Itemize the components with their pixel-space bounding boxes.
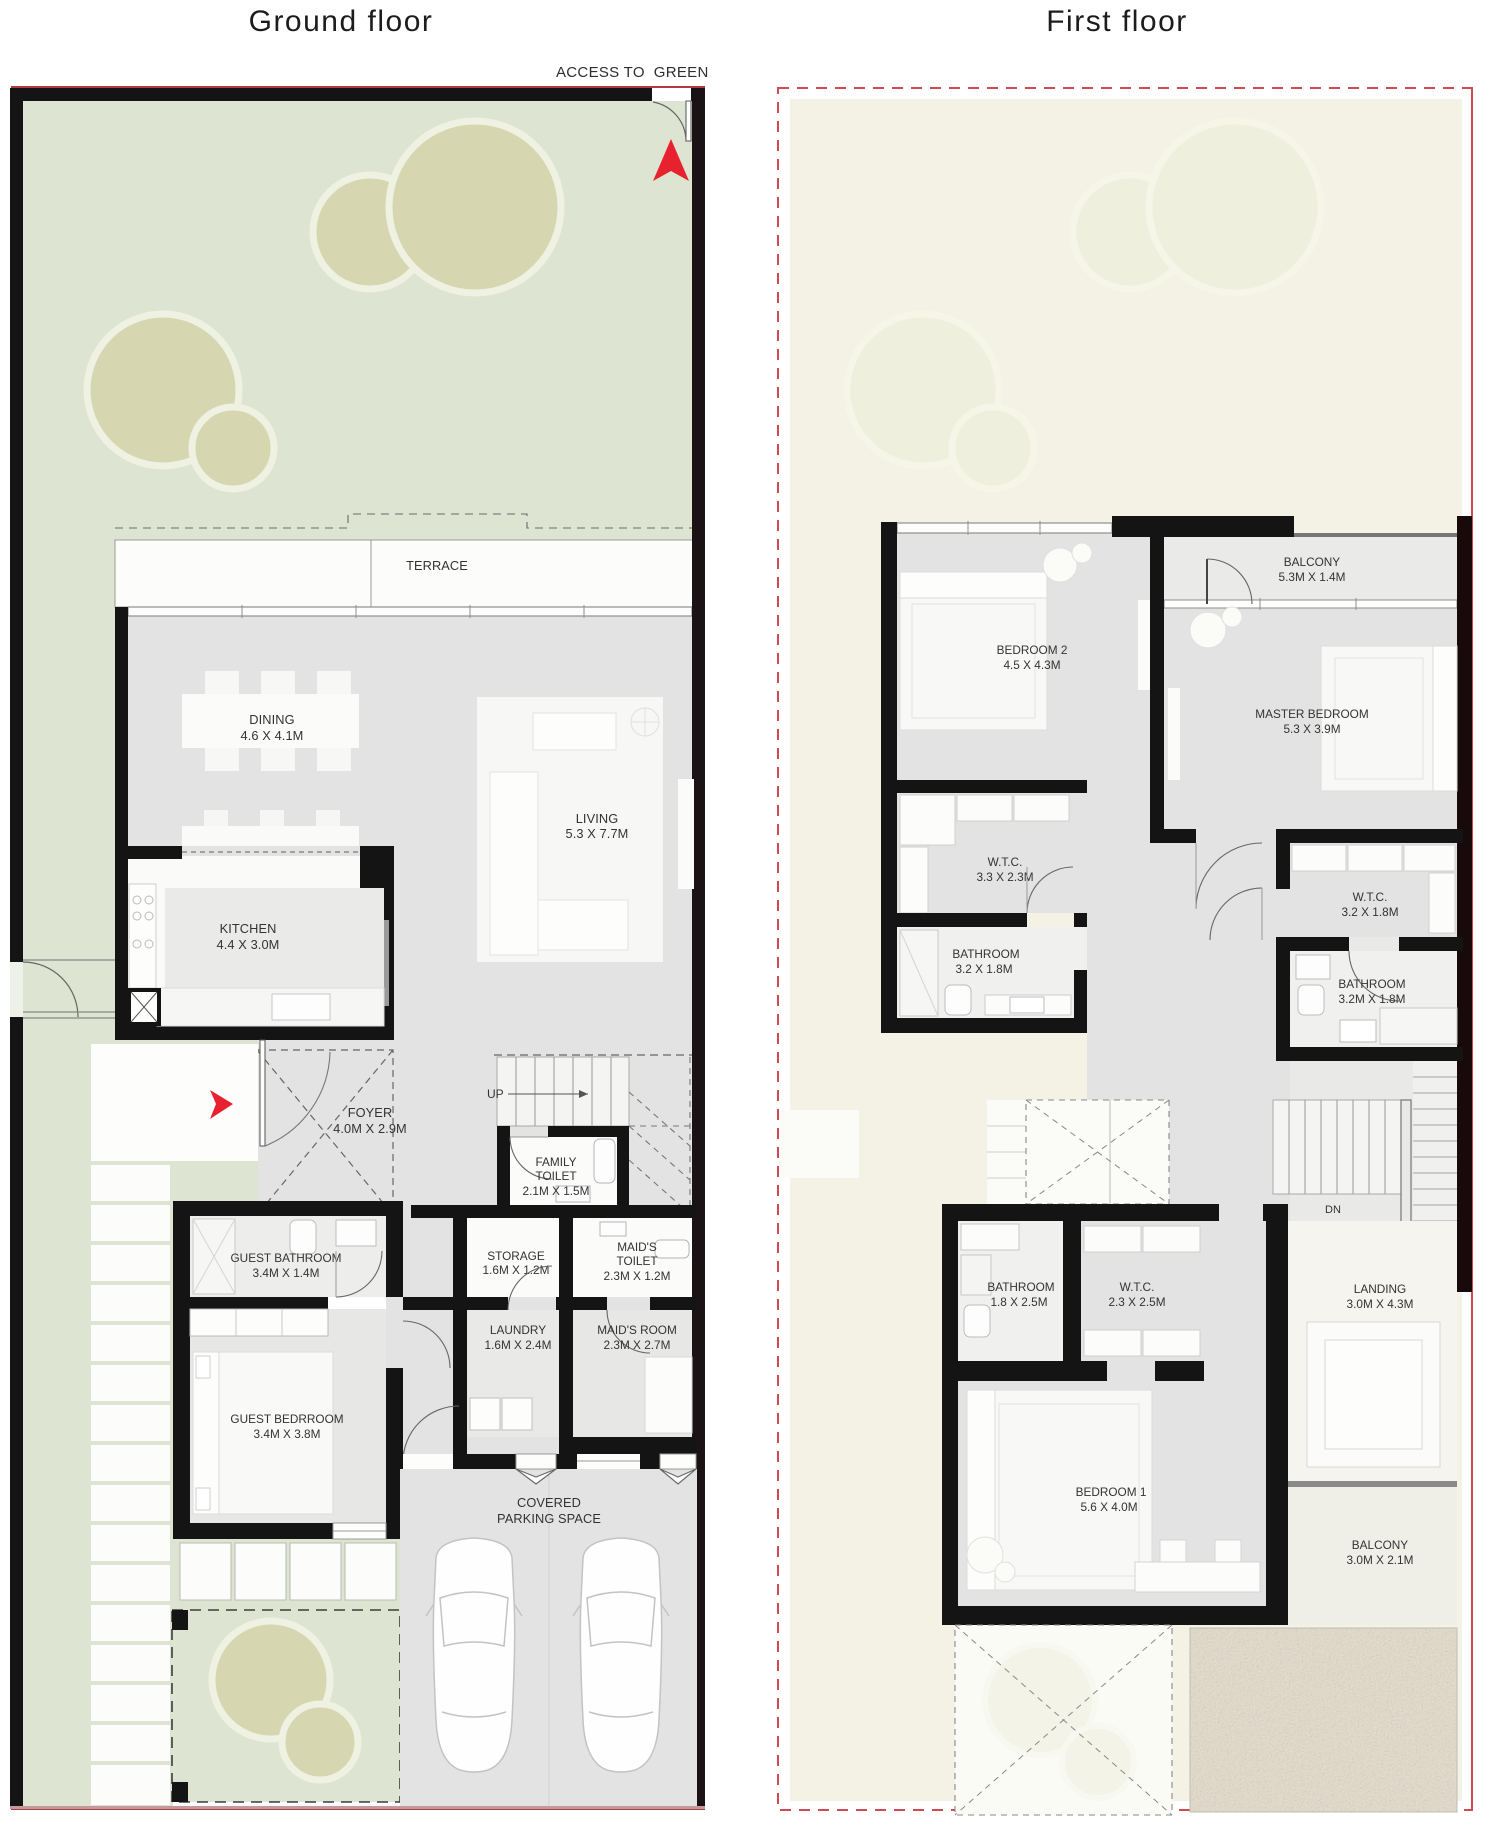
svg-text:MAID'S: MAID'S (617, 1240, 657, 1254)
svg-text:3.2M X 1.8M: 3.2M X 1.8M (1339, 992, 1406, 1006)
svg-text:W.T.C.: W.T.C. (1353, 890, 1388, 904)
svg-text:4.4 X 3.0M: 4.4 X 3.0M (217, 937, 280, 952)
svg-text:UP: UP (487, 1087, 504, 1101)
svg-text:MASTER BEDROOM: MASTER BEDROOM (1255, 707, 1368, 721)
svg-text:PARKING SPACE: PARKING SPACE (497, 1511, 601, 1526)
svg-text:3.2 X 1.8M: 3.2 X 1.8M (955, 962, 1012, 976)
svg-text:GUEST BATHROOM: GUEST BATHROOM (231, 1251, 342, 1265)
svg-text:Ground floor: Ground floor (249, 5, 434, 38)
svg-text:GUEST BEDRROOM: GUEST BEDRROOM (230, 1412, 343, 1426)
svg-text:1.6M X 1.2M: 1.6M X 1.2M (483, 1263, 550, 1277)
svg-text:COVERED: COVERED (517, 1495, 581, 1510)
svg-text:FOYER: FOYER (348, 1105, 393, 1120)
svg-text:1.8 X 2.5M: 1.8 X 2.5M (990, 1295, 1047, 1309)
svg-text:BEDROOM 2: BEDROOM 2 (997, 643, 1068, 657)
svg-text:5.3M X 1.4M: 5.3M X 1.4M (1279, 570, 1346, 584)
svg-text:MAID'S ROOM: MAID'S ROOM (597, 1323, 677, 1337)
svg-text:5.6 X 4.0M: 5.6 X 4.0M (1080, 1500, 1137, 1514)
svg-text:3.0M X 2.1M: 3.0M X 2.1M (1347, 1553, 1414, 1567)
svg-text:BATHROOM: BATHROOM (952, 947, 1019, 961)
svg-text:3.0M X 4.3M: 3.0M X 4.3M (1347, 1297, 1414, 1311)
svg-text:3.4M X 1.4M: 3.4M X 1.4M (253, 1266, 320, 1280)
svg-text:TOILET: TOILET (616, 1254, 657, 1268)
svg-text:2.3 X 2.5M: 2.3 X 2.5M (1108, 1295, 1165, 1309)
svg-text:W.T.C.: W.T.C. (1120, 1280, 1155, 1294)
svg-text:LAUNDRY: LAUNDRY (490, 1323, 546, 1337)
svg-text:2.3M X 2.7M: 2.3M X 2.7M (604, 1338, 671, 1352)
svg-text:BATHROOM: BATHROOM (987, 1280, 1054, 1294)
svg-text:3.4M X 3.8M: 3.4M X 3.8M (254, 1427, 321, 1441)
svg-text:3.3 X 2.3M: 3.3 X 2.3M (976, 870, 1033, 884)
svg-text:5.3 X 7.7M: 5.3 X 7.7M (566, 826, 629, 841)
svg-text:2.1M X 1.5M: 2.1M X 1.5M (523, 1184, 590, 1198)
svg-text:4.6 X 4.1M: 4.6 X 4.1M (241, 728, 304, 743)
svg-text:DN: DN (1325, 1204, 1341, 1216)
svg-text:TOILET: TOILET (535, 1169, 576, 1183)
svg-text:ACCESS TO GREEN: ACCESS TO GREEN (556, 64, 709, 81)
svg-text:BALCONY: BALCONY (1352, 1538, 1409, 1552)
svg-text:First floor: First floor (1046, 5, 1188, 38)
svg-text:5.3 X 3.9M: 5.3 X 3.9M (1283, 722, 1340, 736)
svg-text:BATHROOM: BATHROOM (1338, 977, 1405, 991)
svg-text:1.6M X 2.4M: 1.6M X 2.4M (485, 1338, 552, 1352)
svg-text:FAMILY: FAMILY (535, 1155, 576, 1169)
svg-text:W.T.C.: W.T.C. (988, 855, 1023, 869)
svg-text:4.0M X 2.9M: 4.0M X 2.9M (333, 1121, 407, 1136)
svg-text:4.5 X 4.3M: 4.5 X 4.3M (1003, 658, 1060, 672)
svg-text:DINING: DINING (249, 712, 294, 727)
svg-text:2.3M X 1.2M: 2.3M X 1.2M (604, 1269, 671, 1283)
svg-text:STORAGE: STORAGE (487, 1249, 545, 1263)
svg-text:BALCONY: BALCONY (1284, 555, 1341, 569)
svg-text:BEDROOM 1: BEDROOM 1 (1076, 1485, 1147, 1499)
svg-text:LIVING: LIVING (576, 811, 619, 826)
svg-text:TERRACE: TERRACE (406, 558, 468, 573)
svg-text:KITCHEN: KITCHEN (220, 921, 277, 936)
svg-text:3.2 X 1.8M: 3.2 X 1.8M (1341, 905, 1398, 919)
svg-text:LANDING: LANDING (1354, 1282, 1406, 1296)
